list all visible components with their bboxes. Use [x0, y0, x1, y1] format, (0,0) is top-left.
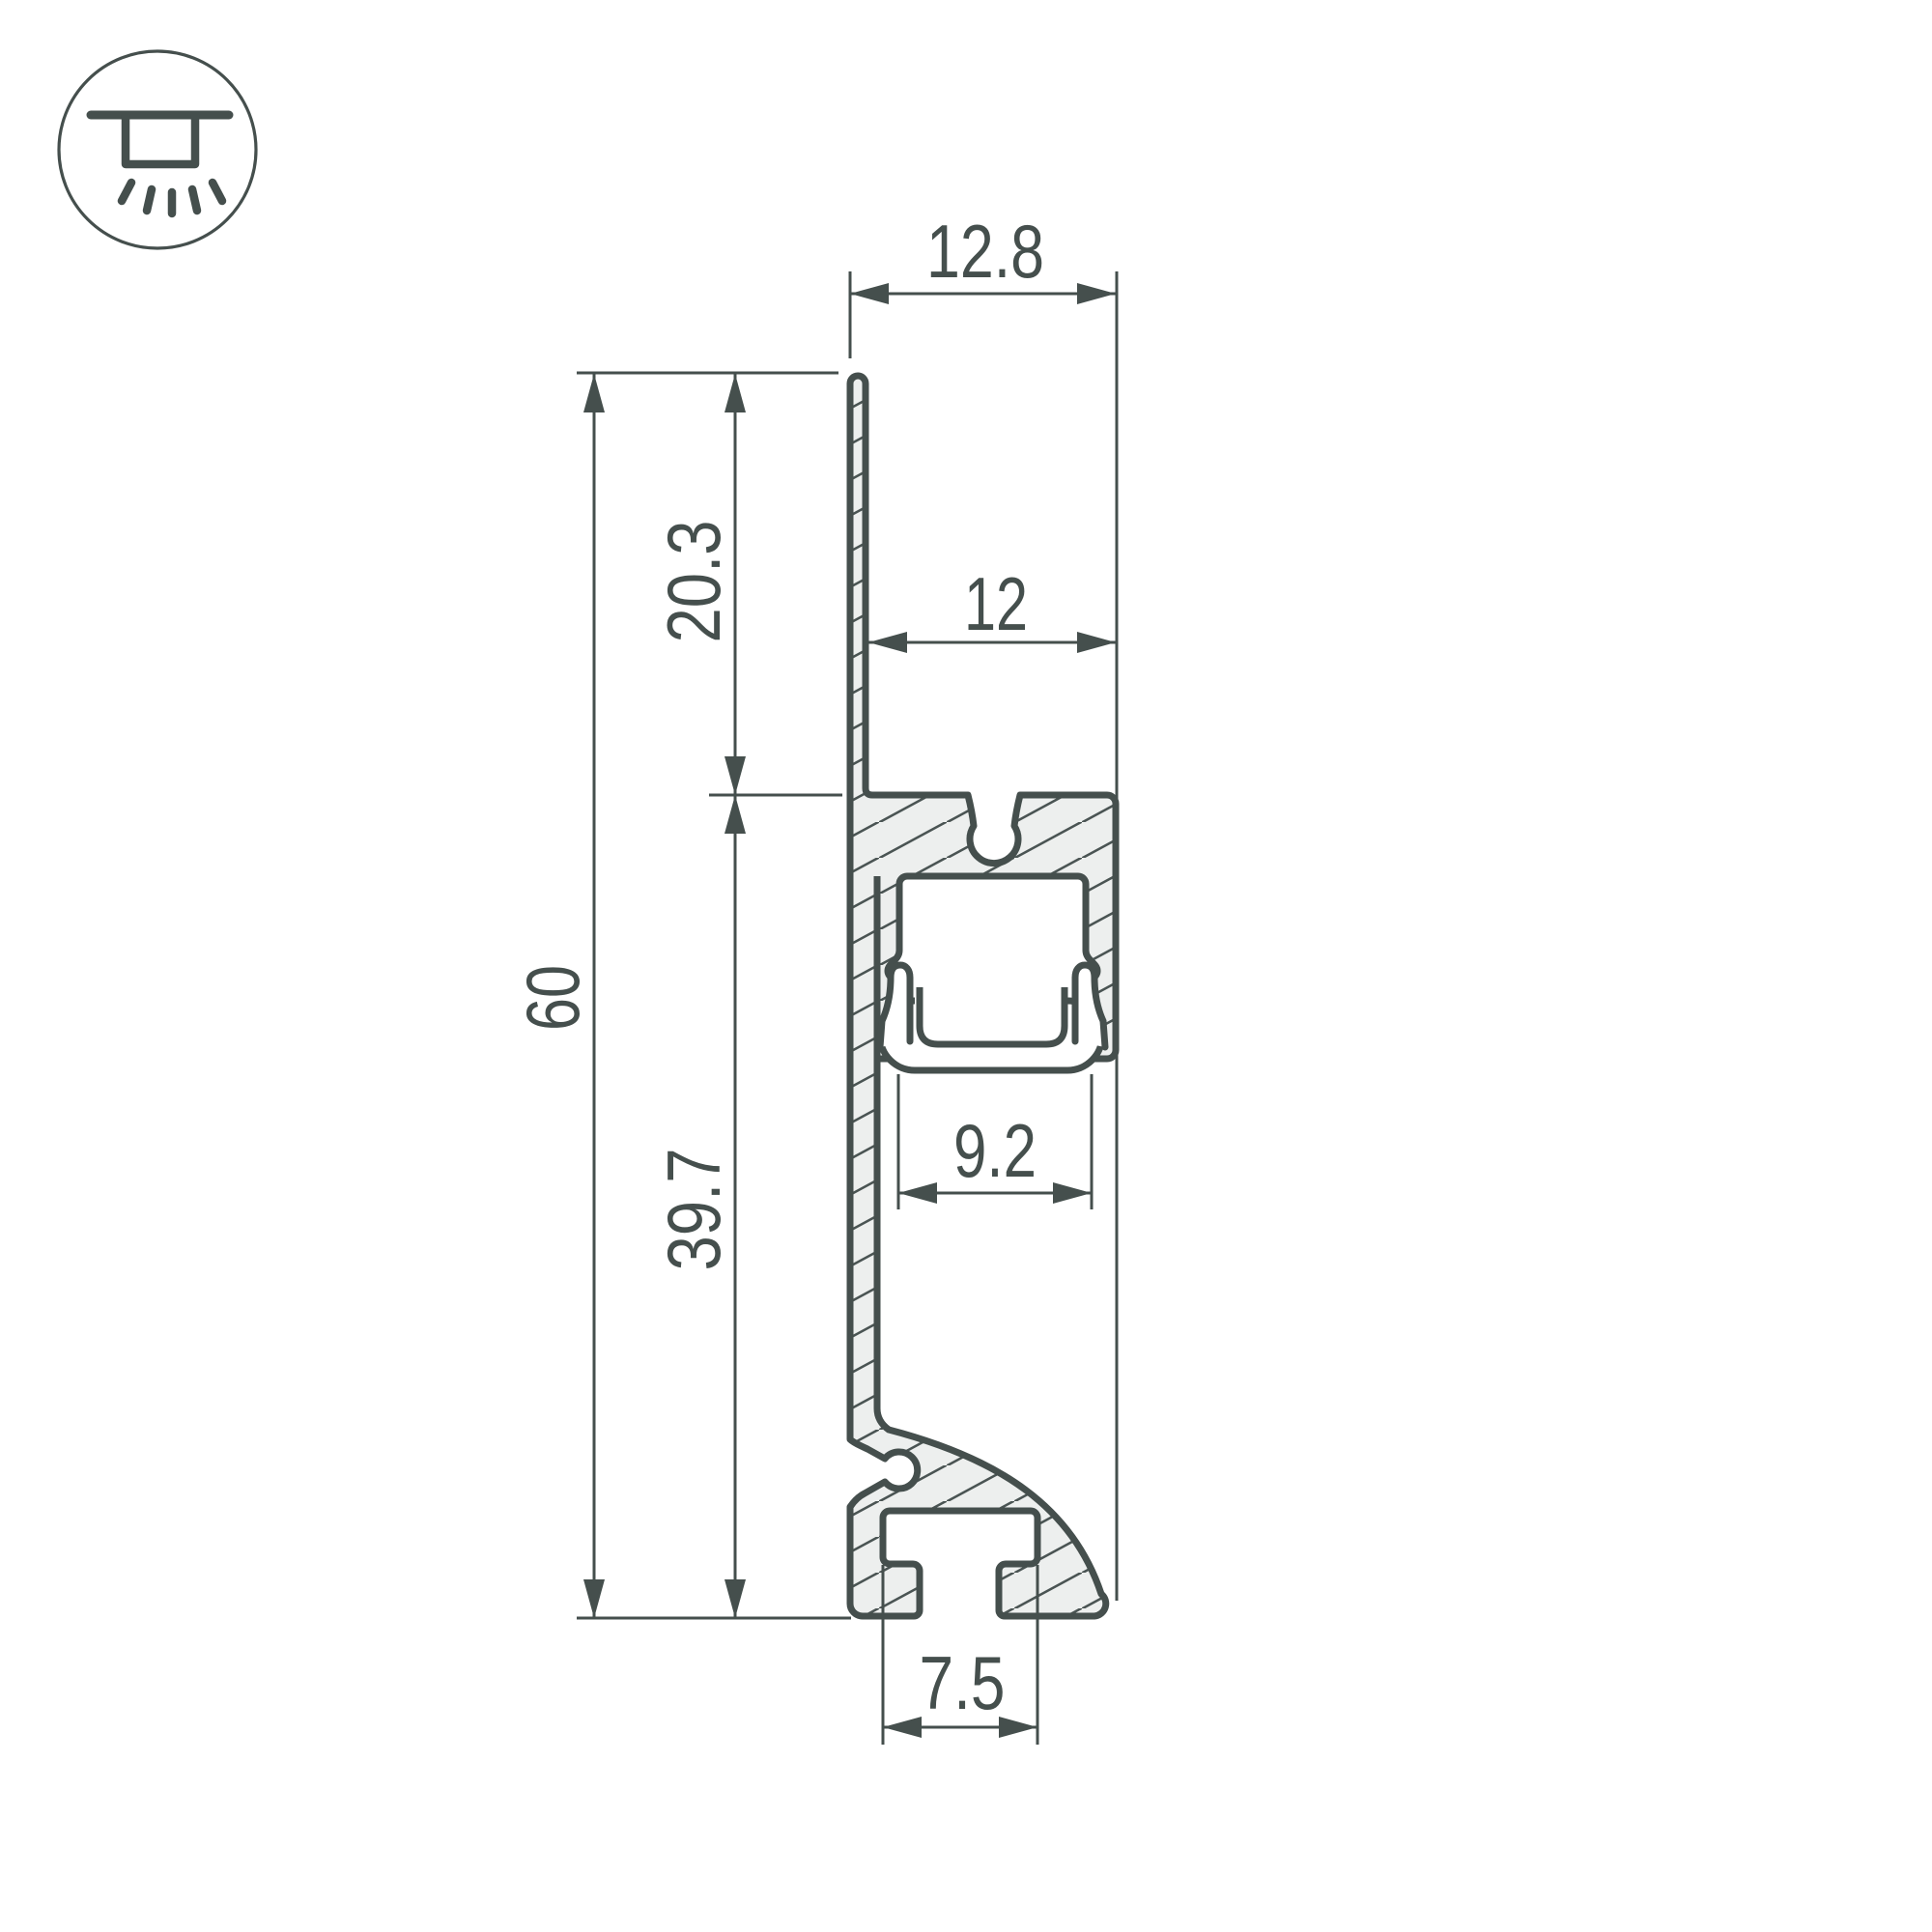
svg-text:39.7: 39.7: [651, 1149, 736, 1271]
svg-text:60: 60: [510, 965, 595, 1031]
svg-text:20.3: 20.3: [651, 521, 736, 643]
svg-text:7.5: 7.5: [920, 1640, 1006, 1725]
svg-text:12.8: 12.8: [926, 209, 1044, 294]
svg-text:12: 12: [964, 561, 1028, 646]
svg-text:9.2: 9.2: [953, 1108, 1037, 1193]
